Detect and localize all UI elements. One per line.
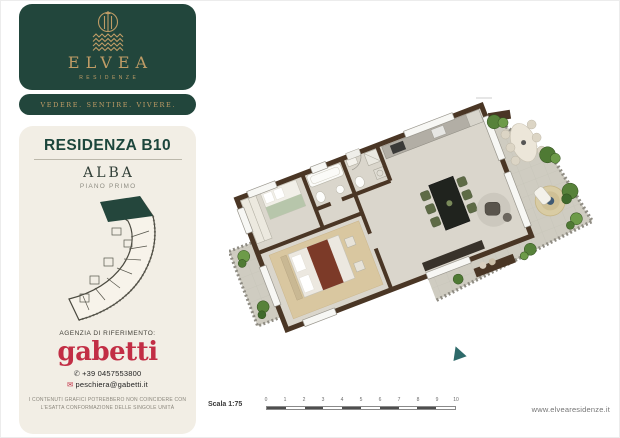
brand-subtitle: RESIDENZE xyxy=(19,75,196,81)
scale-segment xyxy=(267,407,286,409)
gabetti-logo: gabetti xyxy=(19,337,196,367)
scale-segment xyxy=(436,407,455,409)
disclaimer-line2: L'ESATTA CONFORMAZIONE DELLE SINGOLE UNI… xyxy=(19,405,196,413)
agency-label: AGENZIA DI RIFERIMENTO: xyxy=(19,330,196,337)
divider xyxy=(34,159,182,160)
residence-title: RESIDENZA B10 xyxy=(19,137,196,155)
brand-logo-card: ELVEA RESIDENZE xyxy=(19,4,196,90)
website-link[interactable]: www.elvearesidenze.it xyxy=(532,405,610,414)
entry-marker-triangle xyxy=(449,344,467,361)
phone-number: +39 0457553800 xyxy=(82,369,141,378)
unit-name: ALBA xyxy=(19,165,196,181)
building-key-plan xyxy=(52,196,164,326)
scale-segment xyxy=(323,407,342,409)
unit-floor-label: PIANO PRIMO xyxy=(19,183,196,190)
armchair xyxy=(485,202,500,215)
scale-tick: 1 xyxy=(284,397,287,403)
scale-tick: 10 xyxy=(453,397,459,403)
brand-name: ELVEA xyxy=(19,54,196,72)
disclaimer-line1: I CONTENUTI GRAFICI POTREBBERO NON COINC… xyxy=(19,397,196,405)
scale-tick: 0 xyxy=(265,397,268,403)
phone-row[interactable]: ✆+39 0457553800 xyxy=(19,369,196,378)
scale-segment xyxy=(399,407,418,409)
scale-segment xyxy=(286,407,305,409)
brand-tagline: VEDERE. SENTIRE. VIVERE. xyxy=(39,101,176,109)
scale-tick: 8 xyxy=(417,397,420,403)
email-address: peschiera@gabetti.it xyxy=(75,380,148,389)
scale-bar xyxy=(266,406,456,410)
scale-tick: 3 xyxy=(322,397,325,403)
scale-segment xyxy=(380,407,399,409)
scale-tick: 6 xyxy=(379,397,382,403)
floor-plan xyxy=(229,85,617,369)
scale-segment xyxy=(361,407,380,409)
scale-segment xyxy=(305,407,324,409)
scale-tick: 5 xyxy=(360,397,363,403)
scale-tick: 9 xyxy=(436,397,439,403)
scale-tick: 7 xyxy=(398,397,401,403)
phone-icon: ✆ xyxy=(74,369,80,378)
scale-label: Scala 1:75 xyxy=(208,401,242,408)
scale-segment xyxy=(342,407,361,409)
scale-tick: 2 xyxy=(303,397,306,403)
brochure-page: ELVEA RESIDENZE VEDERE. SENTIRE. VIVERE.… xyxy=(0,0,620,438)
unit-info-panel: RESIDENZA B10 ALBA PIANO PRIMO xyxy=(19,126,196,434)
scale-tick: 4 xyxy=(341,397,344,403)
email-icon: ✉ xyxy=(67,380,73,389)
scale-segment xyxy=(417,407,436,409)
brand-tagline-banner: VEDERE. SENTIRE. VIVERE. xyxy=(19,94,196,115)
email-row[interactable]: ✉peschiera@gabetti.it xyxy=(19,380,196,389)
disclaimer-text: I CONTENUTI GRAFICI POTREBBERO NON COINC… xyxy=(19,397,196,413)
elvea-tower-waves-icon xyxy=(88,10,128,54)
